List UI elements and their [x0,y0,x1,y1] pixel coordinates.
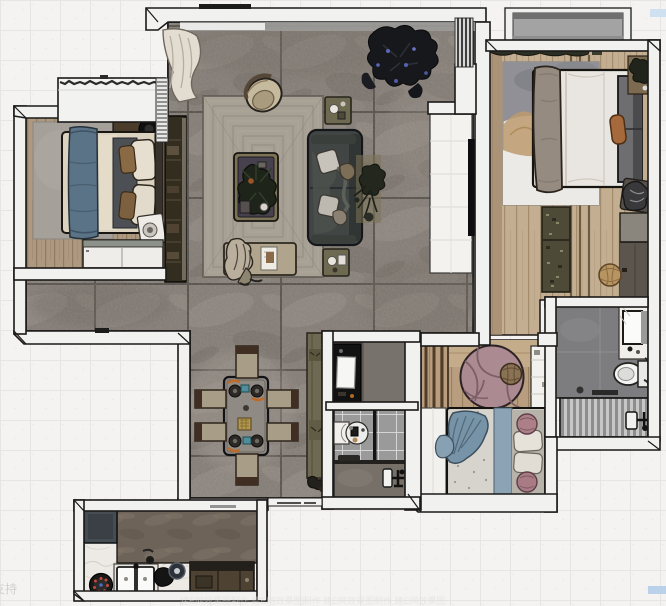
svg-text:建E网效果图制作 建E网效果图制作 建E网效果图制作 建E网: 建E网效果图制作 建E网效果图制作 建E网效果图制作 建E网效果图 [180,595,446,606]
svg-text:支持: 支持 [0,581,17,596]
